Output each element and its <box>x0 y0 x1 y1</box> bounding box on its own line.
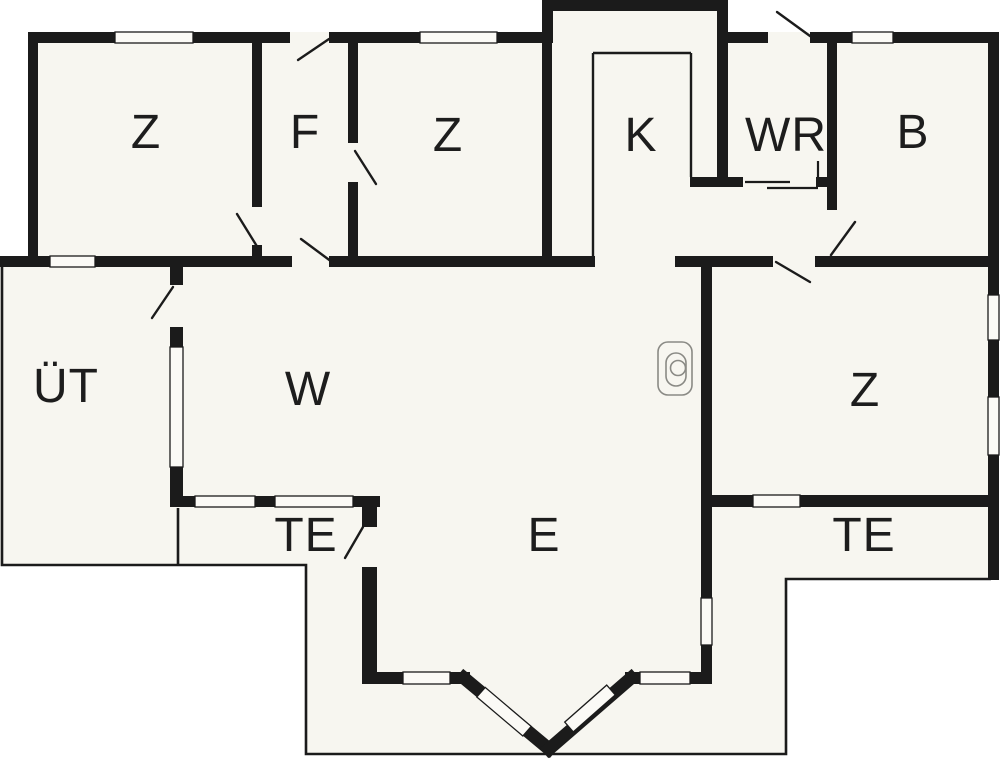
room-label-covered-terrace: ÜT <box>33 363 99 411</box>
room-label-bedroom-top-middle: Z <box>433 112 463 160</box>
room-label-terrace-right: TE <box>832 512 895 560</box>
room-label-vestibule: F <box>290 109 320 157</box>
room-label-dining-area: E <box>527 512 560 560</box>
floor-plan: Z F Z K WR B ÜT W Z TE E TE <box>0 0 1000 760</box>
room-label-utility-room: WR <box>745 112 827 160</box>
room-label-living-room: W <box>285 366 331 414</box>
room-label-bathroom: B <box>896 109 929 157</box>
room-label-terrace-left: TE <box>274 512 337 560</box>
room-label-kitchen: K <box>624 112 657 160</box>
room-label-bedroom-top-left: Z <box>131 109 161 157</box>
room-label-bedroom-right: Z <box>850 367 880 415</box>
